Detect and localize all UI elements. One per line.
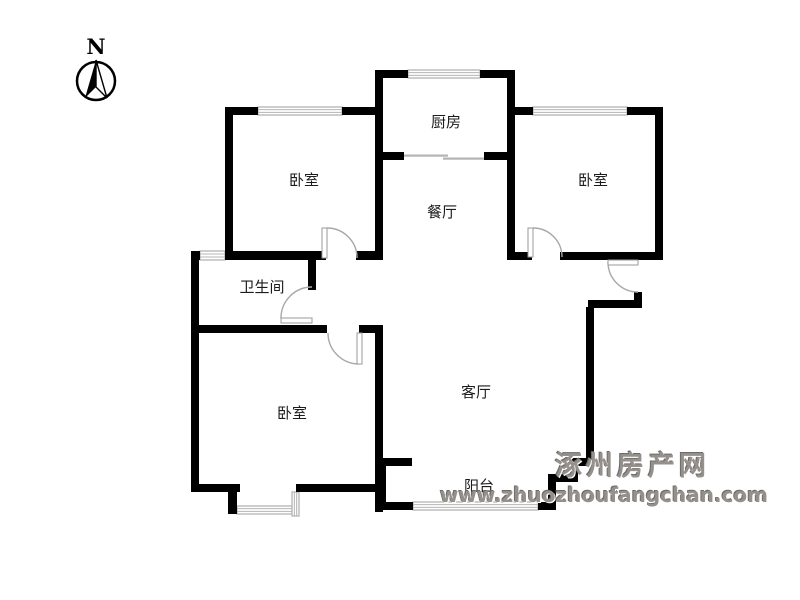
wall-segment xyxy=(191,251,199,492)
compass-north-label: N xyxy=(86,34,105,59)
wall-segment xyxy=(375,152,404,160)
door-bedroom-northeast-leaf xyxy=(528,228,533,257)
room-label-bedroom-southwest: 卧室 xyxy=(277,404,307,422)
window-symbol xyxy=(258,107,342,115)
sliding-door-line xyxy=(443,158,486,160)
door-entry-leaf xyxy=(608,260,638,265)
floorplan-canvas: 厨房卧室卧室餐厅卫生间卧室客厅阳台 N 涿州房产网 www.zhuozhoufa… xyxy=(0,0,800,600)
wall-segment xyxy=(376,458,412,466)
window-symbol xyxy=(200,251,225,260)
door-bedroom-southwest-swing-arc xyxy=(328,333,359,364)
watermark-site-url: www.zhuozhoufangchan.com xyxy=(440,484,768,506)
room-label-living-room: 客厅 xyxy=(461,383,491,401)
wall-segment xyxy=(342,107,378,115)
wall-segment xyxy=(228,484,237,514)
wall-segment xyxy=(513,107,533,115)
door-bathroom-swing-arc xyxy=(281,287,312,318)
window-symbol xyxy=(533,107,627,115)
wall-segment xyxy=(484,152,515,160)
compass: N xyxy=(77,34,115,100)
window-symbol xyxy=(237,506,292,514)
room-label-bedroom-northeast: 卧室 xyxy=(578,171,608,189)
door-bathroom-leaf xyxy=(281,318,312,323)
wall-segment xyxy=(507,70,515,260)
doors-layer xyxy=(281,228,638,364)
watermark-site-name: 涿州房产网 xyxy=(555,452,710,482)
window-symbol xyxy=(408,70,480,78)
wall-segment xyxy=(191,325,327,333)
wall-segment xyxy=(560,252,663,260)
wall-segment xyxy=(588,300,642,308)
door-entry-swing-arc xyxy=(608,262,638,292)
window-symbol xyxy=(292,492,299,516)
wall-segment xyxy=(296,484,378,492)
wall-segment xyxy=(375,70,383,260)
wall-segment xyxy=(356,251,383,260)
door-bedroom-southwest-leaf xyxy=(357,333,362,364)
sliding-door-line xyxy=(404,155,448,157)
wall-segment xyxy=(308,252,316,290)
room-label-bedroom-northwest: 卧室 xyxy=(289,171,319,189)
floorplan-drawing: 厨房卧室卧室餐厅卫生间卧室客厅阳台 N xyxy=(0,0,800,600)
room-label-bathroom: 卫生间 xyxy=(239,278,284,296)
wall-segment xyxy=(586,307,594,463)
room-labels-layer: 厨房卧室卧室餐厅卫生间卧室客厅阳台 xyxy=(239,113,608,495)
wall-segment xyxy=(655,107,663,258)
door-bedroom-northeast-swing-arc xyxy=(533,228,562,257)
door-bedroom-northwest-leaf xyxy=(322,228,327,258)
wall-segment xyxy=(225,107,233,258)
room-label-dining-room: 餐厅 xyxy=(427,203,457,221)
room-label-kitchen: 厨房 xyxy=(431,113,461,131)
door-bedroom-northwest-swing-arc xyxy=(327,228,357,258)
